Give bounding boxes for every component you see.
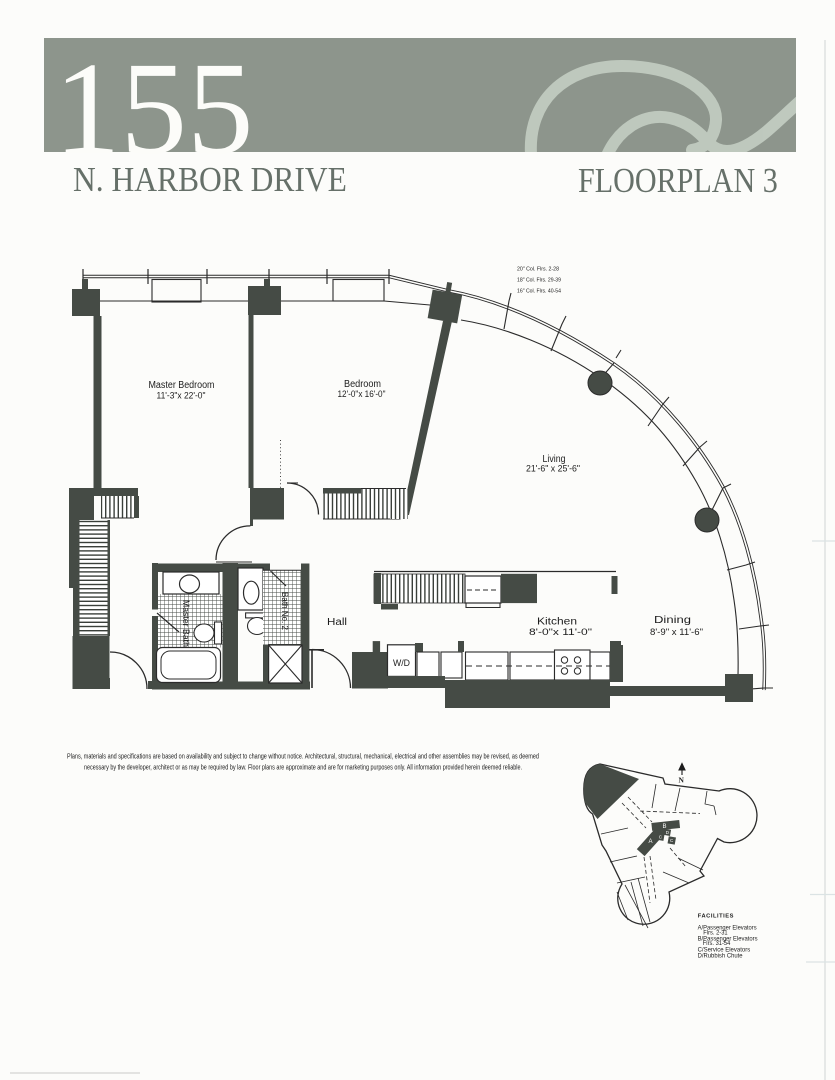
svg-text:Bath No. 2: Bath No. 2 — [280, 592, 290, 630]
svg-text:necessary by the developer, ar: necessary by the developer, architect or… — [84, 763, 522, 772]
svg-text:A: A — [649, 839, 653, 845]
svg-text:8'-9" x 11'-6": 8'-9" x 11'-6" — [650, 627, 703, 637]
svg-text:Dining: Dining — [654, 615, 691, 626]
svg-text:12'-0"x 16'-0": 12'-0"x 16'-0" — [338, 389, 386, 399]
svg-text:Hall: Hall — [327, 617, 347, 628]
svg-text:16" Col. Flrs. 40-54: 16" Col. Flrs. 40-54 — [517, 289, 561, 295]
svg-text:20" Col. Flrs. 2-28: 20" Col. Flrs. 2-28 — [517, 267, 559, 273]
svg-text:Kitchen: Kitchen — [537, 617, 577, 628]
svg-text:Master Bedroom: Master Bedroom — [149, 380, 215, 391]
svg-text:8'-0"x 11'-0": 8'-0"x 11'-0" — [529, 627, 592, 637]
svg-text:N: N — [679, 776, 685, 785]
svg-text:11'-3"x 22'-0": 11'-3"x 22'-0" — [157, 391, 206, 401]
svg-text:FACILITIES: FACILITIES — [698, 913, 734, 919]
svg-text:Flrs. 31-54: Flrs. 31-54 — [703, 941, 731, 947]
svg-text:18" Col. Flrs. 29-39: 18" Col. Flrs. 29-39 — [517, 278, 561, 284]
svg-text:21'-6" x 25'-6": 21'-6" x 25'-6" — [526, 463, 580, 473]
svg-text:D/Rubbish Chute: D/Rubbish Chute — [698, 954, 744, 960]
svg-text:Master Bath: Master Bath — [181, 600, 191, 647]
svg-text:W/D: W/D — [393, 658, 410, 668]
svg-text:Plans, materials and specifica: Plans, materials and specifications are … — [67, 752, 539, 761]
